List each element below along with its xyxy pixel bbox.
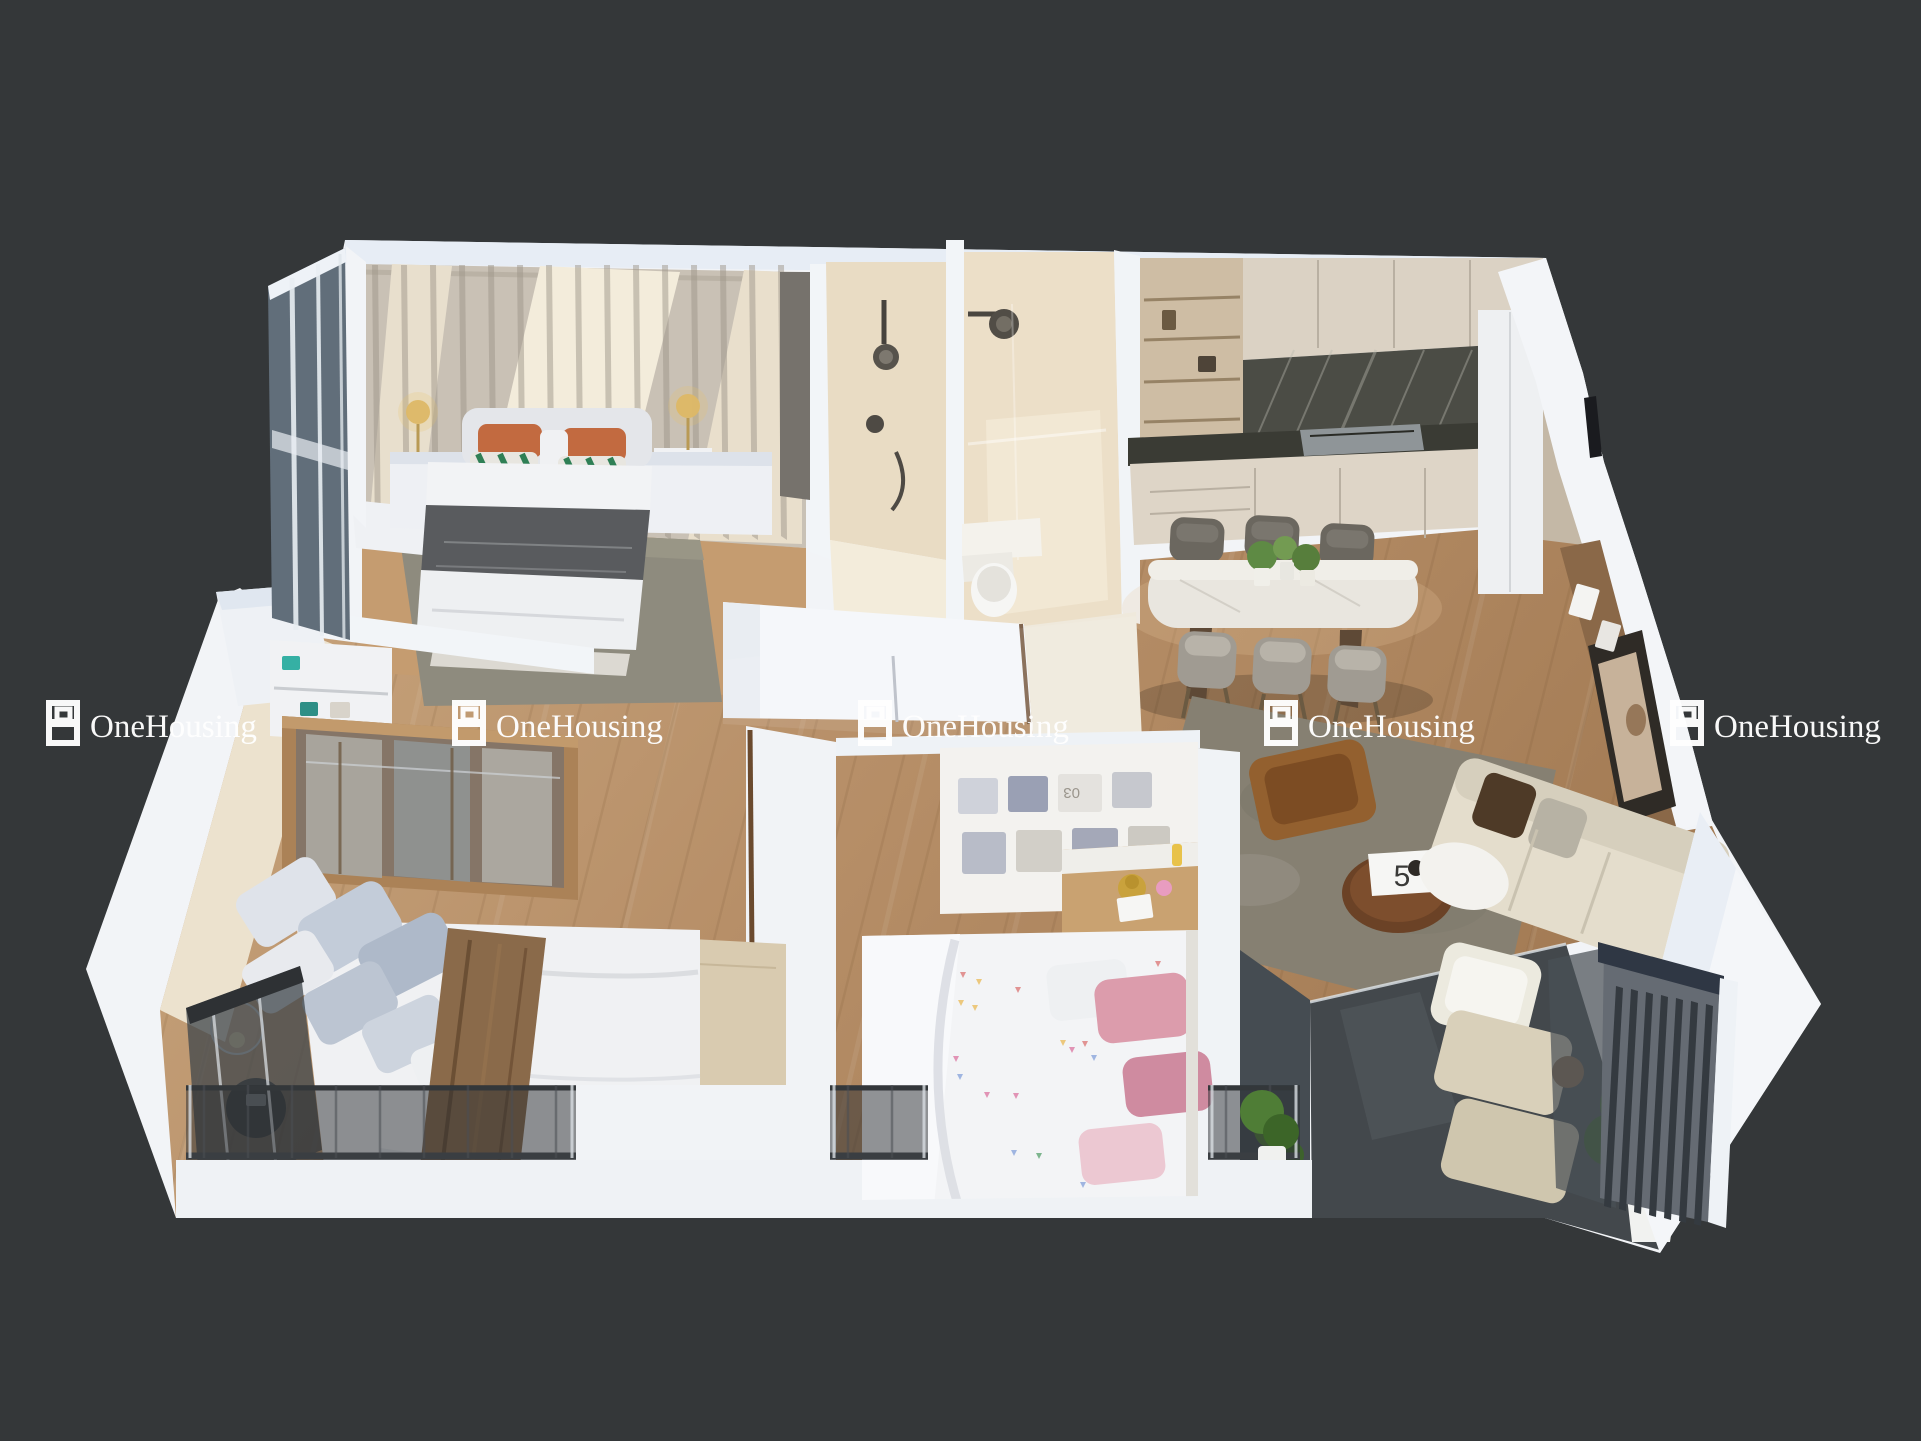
svg-text:OneHousing: OneHousing (1308, 709, 1475, 745)
svg-text:OneHousing: OneHousing (90, 709, 257, 745)
svg-text:OneHousing: OneHousing (902, 709, 1069, 745)
svg-text:OneHousing: OneHousing (496, 709, 663, 745)
svg-text:5: 5 (1394, 860, 1411, 893)
svg-text:OneHousing: OneHousing (1714, 709, 1881, 745)
svg-text:03: 03 (1063, 784, 1080, 801)
